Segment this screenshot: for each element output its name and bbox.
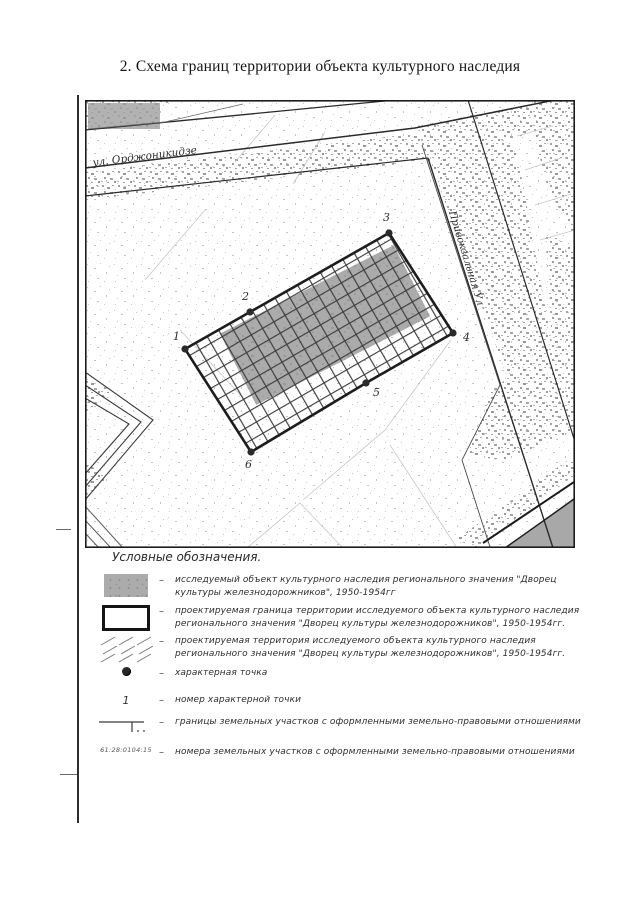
boundary-rect-swatch bbox=[102, 605, 150, 631]
legend-separator: – bbox=[159, 695, 164, 706]
legend-separator: – bbox=[159, 606, 164, 617]
legend-item-text: номер характерной точки bbox=[175, 694, 595, 707]
point-number-5: 5 bbox=[373, 386, 380, 399]
legend: Условные обозначения. – исследуемый объе… bbox=[95, 548, 600, 788]
characteristic-point-dot bbox=[362, 379, 369, 386]
margin-tick bbox=[56, 529, 71, 530]
legend-item-text: номера земельных участков с оформленными… bbox=[175, 746, 595, 759]
legend-separator: – bbox=[159, 747, 164, 758]
legend-separator: – bbox=[159, 717, 164, 728]
margin-tick bbox=[60, 774, 77, 775]
hatch-swatch bbox=[99, 635, 153, 663]
point-number-2: 2 bbox=[241, 290, 249, 303]
parcel-number-sample: 61:28:0104:15 bbox=[100, 746, 152, 754]
map-canvas: ул. Орджоникидзе Привокзальная Ул 1 bbox=[85, 100, 575, 548]
characteristic-point-dot bbox=[449, 329, 456, 336]
characteristic-point-dot bbox=[246, 308, 253, 315]
legend-separator: – bbox=[159, 636, 164, 647]
legend-item-text: исследуемый объект культурного наследия … bbox=[175, 574, 595, 599]
left-margin-rule bbox=[77, 95, 79, 823]
legend-item-text: проектируемая граница территории исследу… bbox=[175, 605, 595, 630]
legend-item-text: границы земельных участков с оформленным… bbox=[175, 716, 595, 729]
point-number-sample: 1 bbox=[123, 694, 130, 707]
legend-heading: Условные обозначения. bbox=[112, 550, 261, 564]
characteristic-point-dot bbox=[247, 448, 254, 455]
point-number-1: 1 bbox=[173, 330, 180, 343]
object-fill-swatch bbox=[104, 574, 148, 597]
point-number-6: 6 bbox=[245, 458, 252, 471]
point-number-4: 4 bbox=[462, 331, 470, 344]
legend-separator: – bbox=[159, 575, 164, 586]
legend-item-text: проектируемая территория исследуемого об… bbox=[175, 635, 595, 660]
boundary-scheme-map: ул. Орджоникидзе Привокзальная Ул 1 bbox=[85, 100, 575, 548]
characteristic-point-dot bbox=[181, 345, 188, 352]
point-number-3: 3 bbox=[383, 211, 390, 224]
legend-item-text: характерная точка bbox=[175, 667, 595, 680]
page-title: 2. Схема границ территории объекта культ… bbox=[0, 58, 640, 76]
point-dot-icon bbox=[122, 667, 131, 676]
legend-separator: – bbox=[159, 668, 164, 679]
characteristic-point-dot bbox=[385, 229, 392, 236]
parcel-line-symbol bbox=[98, 716, 154, 736]
